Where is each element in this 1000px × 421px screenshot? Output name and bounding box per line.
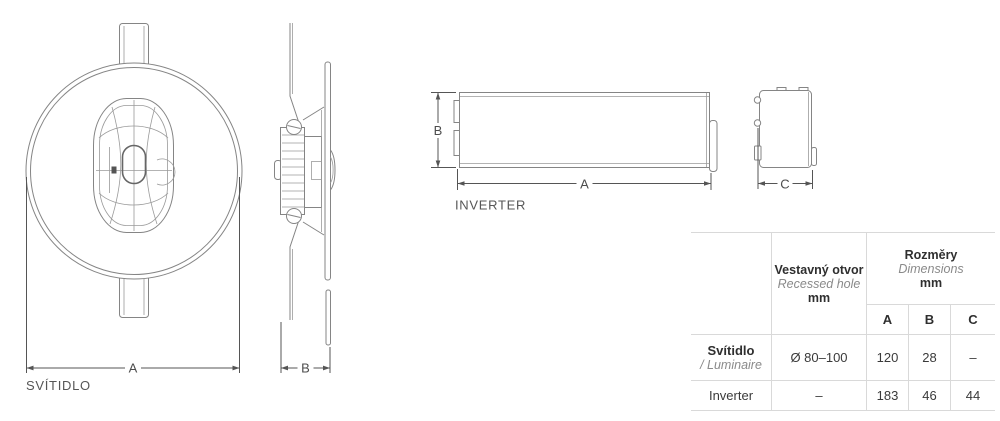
row-luminaire-dim-b: 28 bbox=[908, 334, 950, 380]
luminaire-front-view bbox=[26, 24, 242, 318]
lens-marker-square bbox=[112, 167, 117, 174]
dimensions-header-unit: mm bbox=[920, 276, 942, 290]
row-inverter-dim-a: 183 bbox=[866, 380, 908, 410]
luminaire-dim-a-label: A bbox=[129, 361, 138, 376]
luminaire-side-view bbox=[275, 23, 336, 345]
top-spring-clip bbox=[290, 23, 299, 123]
inverter-dim-c-label: C bbox=[780, 177, 789, 192]
luminaire-caption: SVÍTIDLO bbox=[26, 378, 91, 393]
inverter-caption: INVERTER bbox=[455, 198, 526, 213]
inverter-dimension-a: A bbox=[458, 169, 712, 192]
bezel-cone-top bbox=[303, 107, 324, 120]
heatsink bbox=[281, 128, 305, 215]
column-header-b: B bbox=[908, 304, 950, 334]
trim-flange bbox=[325, 62, 331, 280]
recessed-hole-header-en: Recessed hole bbox=[778, 277, 861, 291]
row-inverter-dim-b: 46 bbox=[908, 380, 950, 410]
row-luminaire-name-cs: Svítidlo bbox=[708, 344, 755, 358]
recessed-hole-header-unit: mm bbox=[808, 291, 830, 305]
inverter-dim-a-label: A bbox=[580, 177, 589, 192]
table-corner-cell bbox=[691, 233, 771, 334]
dimensions-table: Vestavný otvor Recessed hole mm Rozměry … bbox=[691, 232, 995, 411]
recessed-hole-header: Vestavný otvor Recessed hole mm bbox=[771, 233, 866, 334]
inverter-side-tab bbox=[812, 148, 817, 166]
bottom-spring-clip bbox=[290, 220, 299, 320]
row-luminaire-name: Svítidlo / Luminaire bbox=[691, 334, 771, 380]
row-luminaire-dim-c: – bbox=[950, 334, 995, 380]
dimensions-header: Rozměry Dimensions mm bbox=[866, 233, 995, 304]
recessed-hole-header-cs: Vestavný otvor bbox=[775, 263, 864, 277]
inverter-screw-2 bbox=[754, 120, 760, 126]
row-inverter-dim-c: 44 bbox=[950, 380, 995, 410]
datasheet-dimension-figure: A B SVÍTIDLO B A bbox=[0, 0, 1000, 421]
column-header-c: C bbox=[950, 304, 995, 334]
luminaire-top-tab-drawing bbox=[120, 24, 149, 69]
bezel-cone-bottom bbox=[303, 222, 324, 235]
inverter-dim-b-label: B bbox=[434, 123, 443, 138]
trim-flange-lower bbox=[326, 290, 331, 345]
row-inverter-name: Inverter bbox=[691, 380, 771, 410]
row-luminaire-recessed-hole: Ø 80–100 bbox=[771, 334, 866, 380]
row-luminaire-dim-a: 120 bbox=[866, 334, 908, 380]
inverter-screw-1 bbox=[754, 97, 760, 103]
inverter-side-body bbox=[760, 91, 812, 168]
inverter-side-view bbox=[754, 88, 816, 168]
luminaire-dim-b-label: B bbox=[301, 361, 310, 376]
dimensions-header-cs: Rozměry bbox=[905, 248, 958, 262]
lamp-housing bbox=[305, 137, 322, 208]
inverter-body bbox=[460, 93, 710, 168]
dimensions-header-en: Dimensions bbox=[898, 262, 963, 276]
row-inverter-recessed-hole: – bbox=[771, 380, 866, 410]
inverter-right-bracket bbox=[710, 121, 718, 172]
inverter-top-view bbox=[454, 93, 717, 172]
column-header-a: A bbox=[866, 304, 908, 334]
luminaire-bottom-tab-drawing bbox=[120, 276, 149, 318]
row-luminaire-name-en: / Luminaire bbox=[700, 358, 762, 372]
luminaire-dimension-b: B bbox=[281, 322, 330, 376]
inverter-dimension-b: B bbox=[431, 93, 457, 168]
